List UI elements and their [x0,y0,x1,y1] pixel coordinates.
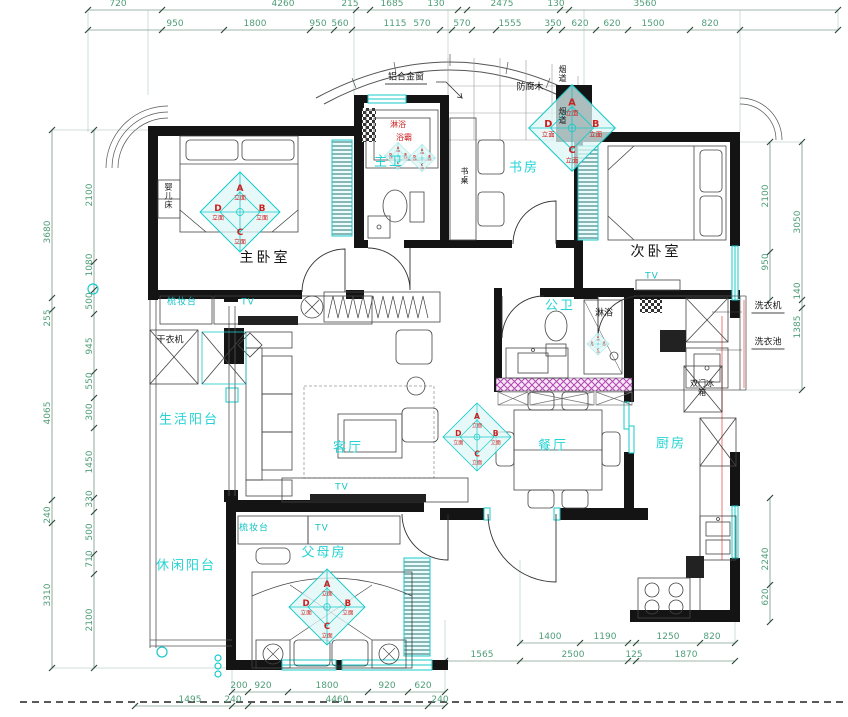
windows [226,95,738,670]
elevation-tag-publicbath [587,333,609,355]
hatched-pier [640,299,662,313]
elevation-tag-masterbath-2 [408,144,435,171]
survey-circles [88,284,221,677]
doors [302,201,640,582]
elevation-tag-masterbath-1 [384,142,411,169]
walls [148,85,740,670]
tiled-ledge [496,378,632,391]
elevation-tag-parents [289,569,365,645]
plan-linework: A 立面 D 立面 B 立面 C 立面 [0,0,848,717]
elevation-tag-master [200,172,280,252]
elevation-tag-living [443,403,511,471]
elevation-tag-study [529,85,615,171]
floor-plan: A 立面 D 立面 B 立面 C 立面 [0,0,848,717]
vanity-cabinet-row [498,392,632,405]
